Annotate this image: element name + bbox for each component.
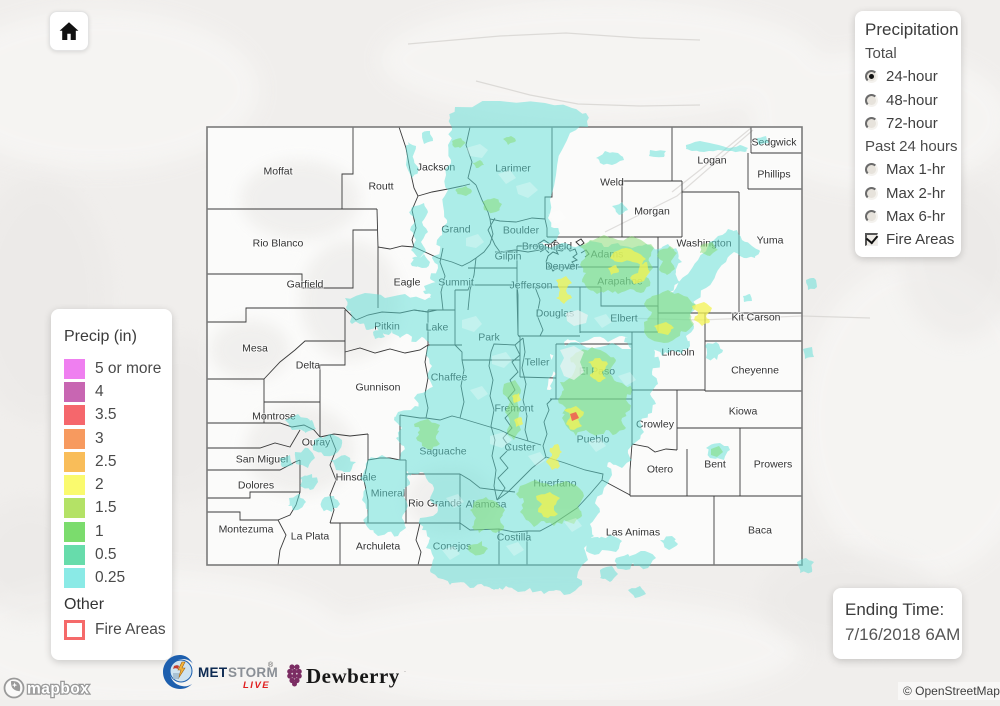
svg-text:Routt: Routt <box>368 181 393 193</box>
svg-text:Otero: Otero <box>647 464 673 476</box>
svg-text:Delta: Delta <box>296 360 321 372</box>
svg-text:Phillips: Phillips <box>757 169 790 181</box>
svg-text:Kit Carson: Kit Carson <box>731 312 780 324</box>
svg-text:Eagle: Eagle <box>394 277 421 289</box>
svg-text:Montezuma: Montezuma <box>219 524 274 536</box>
svg-text:Yuma: Yuma <box>757 235 784 247</box>
svg-text:Rio Blanco: Rio Blanco <box>253 238 304 250</box>
svg-text:MET: MET <box>198 665 228 680</box>
svg-text:Kiowa: Kiowa <box>729 406 758 418</box>
svg-text:·: · <box>404 669 406 675</box>
svg-text:Weld: Weld <box>600 177 624 189</box>
svg-text:La Plata: La Plata <box>291 531 330 543</box>
svg-text:Logan: Logan <box>697 155 726 167</box>
svg-text:Cheyenne: Cheyenne <box>731 365 779 377</box>
svg-text:Crowley: Crowley <box>636 419 675 431</box>
svg-text:Baca: Baca <box>748 525 772 537</box>
svg-text:Dewberry: Dewberry <box>306 664 400 688</box>
svg-text:Moffat: Moffat <box>264 166 293 178</box>
svg-text:Gunnison: Gunnison <box>356 382 401 394</box>
svg-text:Bent: Bent <box>704 459 726 471</box>
svg-text:Prowers: Prowers <box>754 459 793 471</box>
svg-text:Garfield: Garfield <box>287 279 324 291</box>
svg-text:LIVE: LIVE <box>243 680 270 691</box>
svg-text:Archuleta: Archuleta <box>356 541 401 553</box>
svg-text:Dolores: Dolores <box>238 480 274 492</box>
svg-text:Morgan: Morgan <box>634 206 670 218</box>
svg-text:mapbox: mapbox <box>27 681 89 698</box>
svg-text:Mesa: Mesa <box>242 343 268 355</box>
svg-text:®: ® <box>268 661 274 669</box>
